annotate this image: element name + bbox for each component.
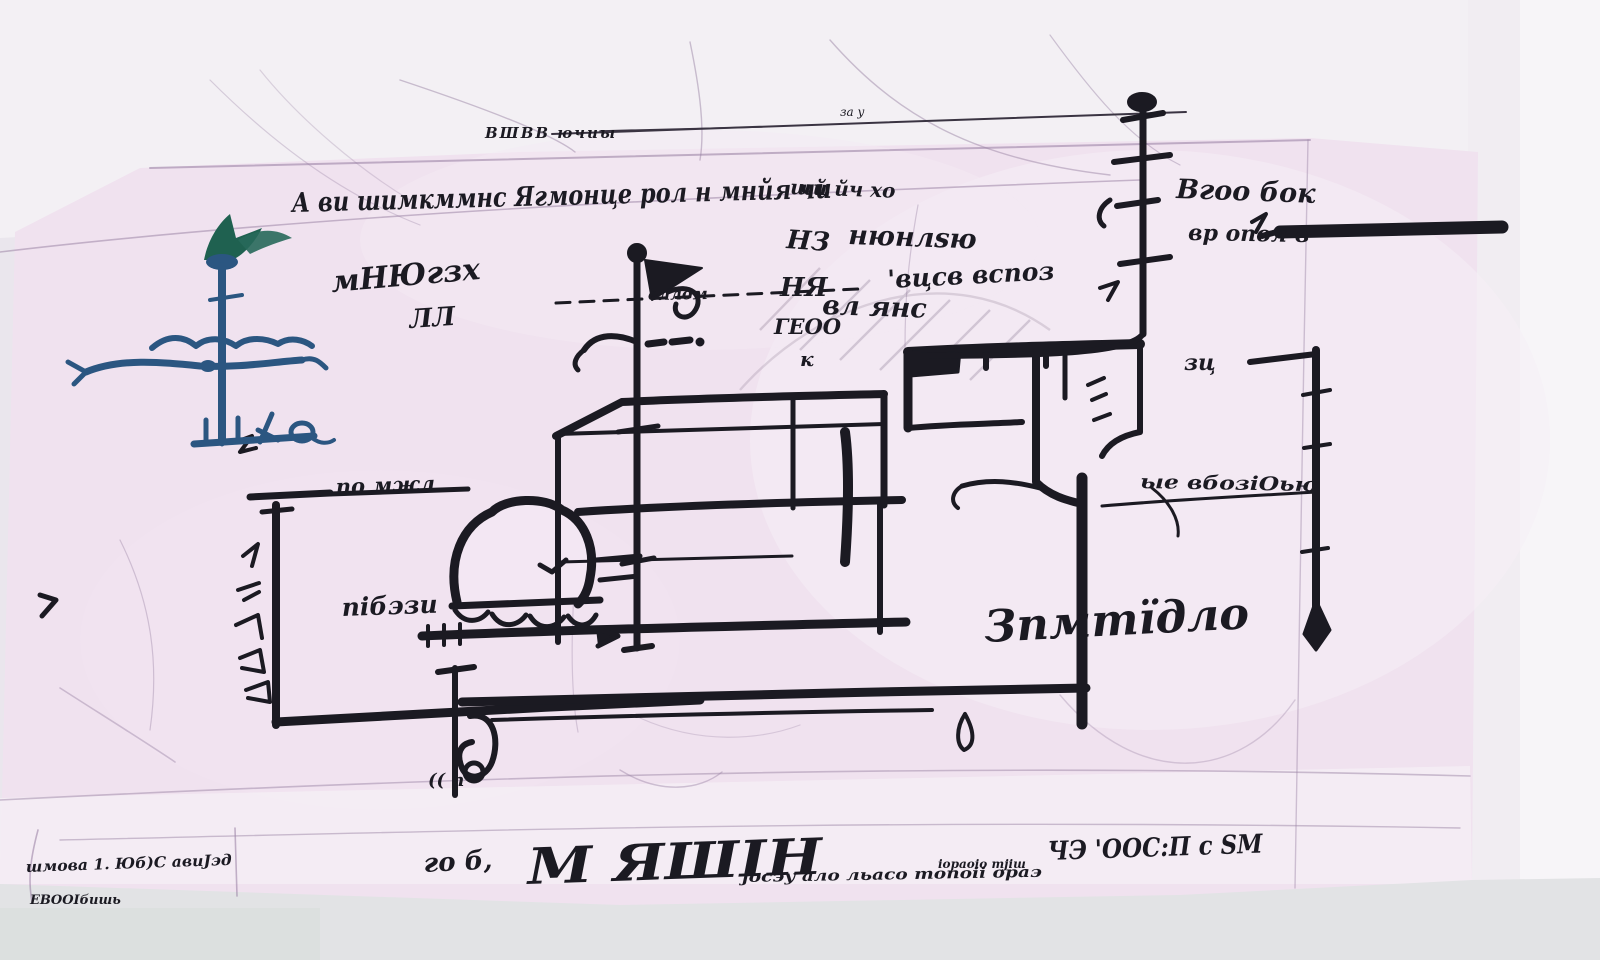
title-text: М ЯШІН: [524, 827, 825, 896]
annotation-gate-marks: (( п: [428, 770, 464, 791]
annotation-enclosure-inner: пібэзи: [341, 590, 438, 622]
annotation-right-top-b: вр опол в: [1188, 220, 1309, 248]
annotation-mid-a: щй йч хо: [790, 175, 896, 203]
annotation-enclosure-top: по мжл: [335, 471, 435, 499]
annotation-right-small: зц: [1184, 350, 1216, 376]
annotation-mid-b: нюнлѕю: [848, 220, 977, 255]
annotation-top-tiny: за у: [840, 105, 865, 119]
annotation-mid-col-2: НЯ: [779, 273, 829, 303]
annotation-right-mid: ые вбозіОью: [1140, 471, 1318, 496]
annotation-corner-line2: ЕВООІбишь: [29, 893, 121, 908]
annotation-mid-d: вл янс: [822, 290, 928, 325]
annotation-mid-col-1: НЗ: [785, 225, 831, 258]
title-sub-note: іораоіо тјіш: [938, 857, 1026, 871]
sketch-photo: ВШВВ ючиы за у А ви шимкммнс Ягмонце рол…: [0, 0, 1600, 960]
annotation-label-left-b: ЛЛ: [406, 302, 457, 335]
annotation-right-top-a: Вгоо бок: [1175, 174, 1317, 210]
annotation-mid-col-4: к: [800, 347, 814, 371]
site-plan-drawing: ВШВВ ючиы за у А ви шимкммнс Ягмонце рол…: [0, 0, 1600, 960]
paper-sheet: [0, 0, 1600, 960]
title-prefix: го б,: [423, 845, 493, 879]
annotation-top-small: ВШВВ ючиы: [484, 124, 617, 142]
annotation-leader: вллом: [648, 284, 708, 304]
